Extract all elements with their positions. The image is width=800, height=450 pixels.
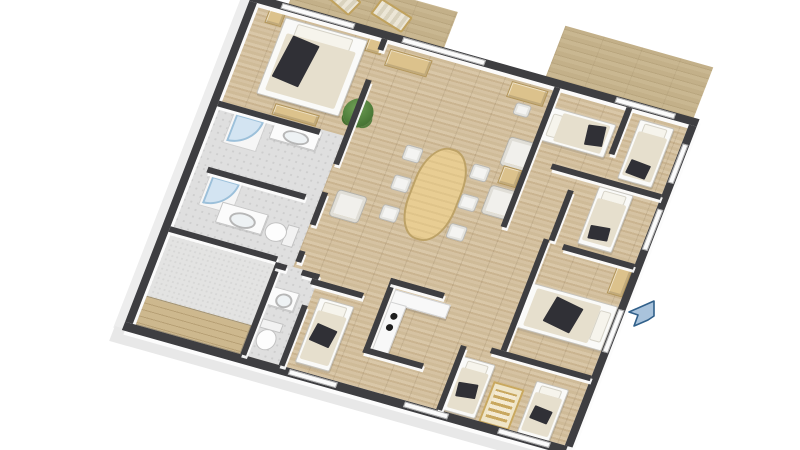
burner — [385, 323, 394, 331]
floor-plan-stage — [0, 0, 800, 450]
burner — [389, 312, 398, 320]
entry-arrow-icon — [624, 297, 658, 329]
entry-arrow-marker[interactable] — [624, 297, 658, 329]
floor-plan-canvas[interactable] — [133, 3, 689, 445]
